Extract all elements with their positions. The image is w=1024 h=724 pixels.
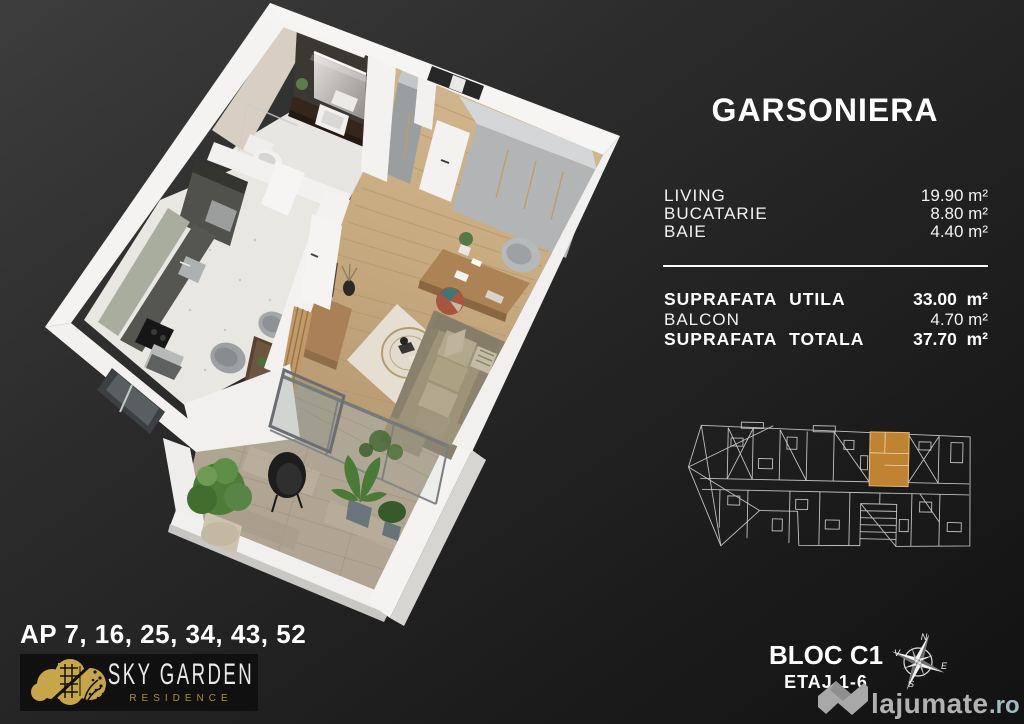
svg-text:V: V — [894, 648, 901, 658]
svg-text:AP 7, 16, 25, 34, 43, 52: AP 7, 16, 25, 34, 43, 52 — [20, 619, 306, 649]
svg-text:19.90 m²: 19.90 m² — [921, 186, 988, 205]
svg-text:BAIE: BAIE — [664, 222, 707, 241]
svg-text:BALCON: BALCON — [664, 310, 740, 329]
svg-text:BUCATARIE: BUCATARIE — [664, 204, 768, 223]
svg-text:RESIDENCE: RESIDENCE — [129, 693, 232, 704]
svg-text:37.70 m²: 37.70 m² — [913, 329, 988, 349]
svg-text:lajumate: lajumate — [871, 688, 989, 719]
svg-text:E: E — [941, 661, 948, 671]
svg-text:4.70 m²: 4.70 m² — [930, 310, 988, 329]
svg-text:4.40 m²: 4.40 m² — [930, 222, 988, 241]
svg-text:ETAJ 1-6: ETAJ 1-6 — [784, 672, 868, 692]
svg-text:LIVING: LIVING — [664, 186, 726, 205]
svg-text:SUPRAFATA UTILA: SUPRAFATA UTILA — [664, 289, 846, 309]
svg-text:.ro: .ro — [989, 692, 1020, 719]
svg-text:8.80 m²: 8.80 m² — [930, 204, 988, 223]
svg-text:BLOC C1: BLOC C1 — [769, 640, 883, 670]
svg-text:N: N — [921, 632, 928, 642]
svg-text:SKY GARDEN: SKY GARDEN — [108, 658, 254, 692]
svg-text:SUPRAFATA TOTALA: SUPRAFATA TOTALA — [664, 329, 864, 349]
svg-text:GARSONIERA: GARSONIERA — [712, 92, 939, 128]
svg-text:33.00 m²: 33.00 m² — [913, 289, 988, 309]
